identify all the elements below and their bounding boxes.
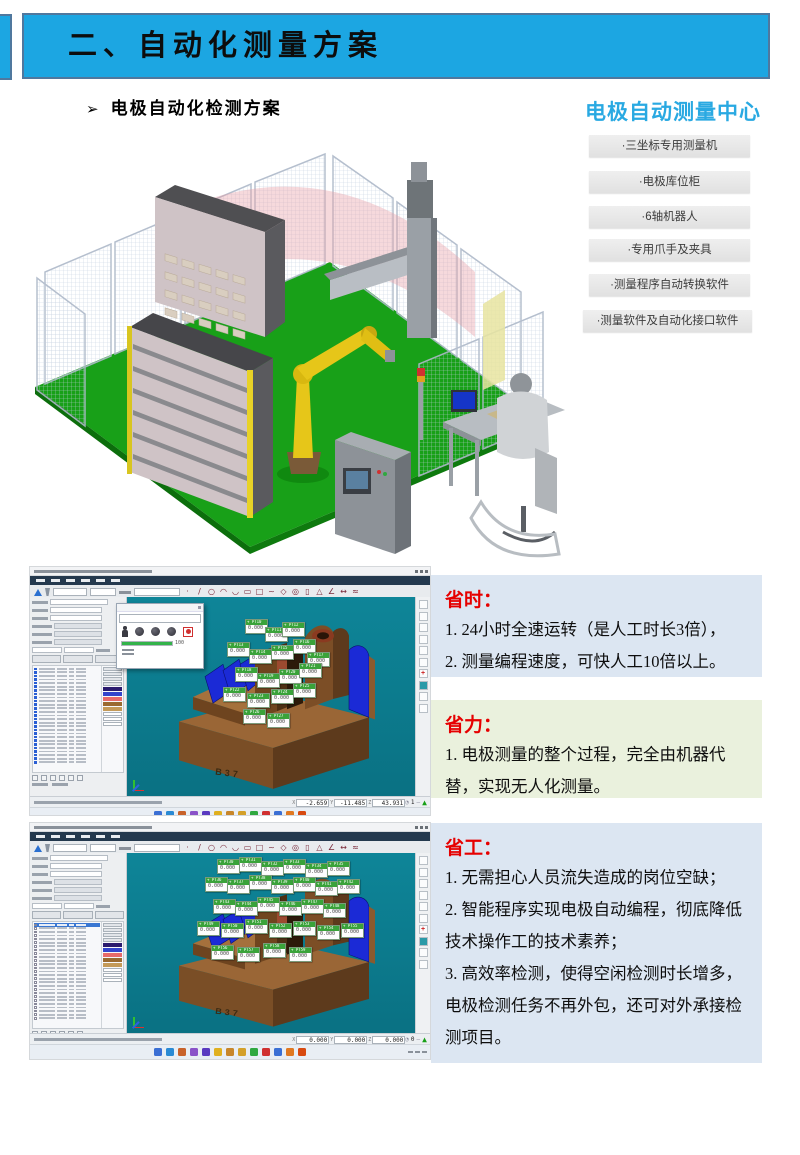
panel-tab[interactable] [52,783,68,786]
cell-value [69,981,74,983]
feature-point-icon[interactable]: · [183,587,192,597]
menu-item[interactable] [51,579,60,582]
taskbar-app-icon[interactable] [226,811,234,816]
cell-value [39,729,55,731]
measurement-tag: + PT500.000 [221,923,244,938]
taskbar-app-icon[interactable] [178,1048,186,1056]
taskbar-app-icon[interactable] [238,1048,246,1056]
cell-value [69,722,74,724]
cell-value [39,675,55,677]
search-input[interactable] [32,903,62,909]
taskbar-app-icon[interactable] [154,811,162,816]
row-checkbox[interactable] [34,934,37,937]
maximize-button[interactable] [420,826,423,829]
cell-value [39,754,55,756]
operator-mode-icon [121,626,128,637]
target-icon[interactable] [419,948,428,957]
cell-value [69,686,74,688]
taskbar-app-icon[interactable] [286,811,294,816]
measurement-tag: + PT330.000 [283,859,306,874]
cell-value [69,718,74,720]
taskbar-app-icon[interactable] [190,1048,198,1056]
cell-value [69,978,74,980]
solution-panel-title: 电极自动测量中心 [585,96,761,126]
row-marker[interactable] [34,747,37,750]
close-button[interactable] [425,570,428,573]
row-marker[interactable] [34,675,37,678]
feature-arc-icon[interactable]: ◠ [219,587,228,597]
row-marker[interactable] [34,757,37,760]
cell-value [57,743,67,745]
benefit-box-staff: 省工： 1. 无需担心人员流失造成的岗位空缺； 2. 智能程序实现电极自动编程，… [431,823,762,1063]
panel-button[interactable] [95,911,124,919]
cell-value [57,725,67,727]
taskbar-app-icon[interactable] [238,811,246,816]
cell-value [57,942,67,944]
row-marker[interactable] [34,703,37,706]
tolerance-color-swatch [103,687,122,691]
row-marker[interactable] [34,739,37,742]
cell-value [76,747,86,749]
row-marker[interactable] [34,668,37,671]
row-marker[interactable] [34,678,37,681]
row-marker[interactable] [34,682,37,685]
panel-icon[interactable] [68,775,74,781]
tolerance-color-swatch [103,702,122,706]
taskbar-app-icon[interactable] [274,811,282,816]
cell-value [76,967,86,969]
feature-arc-icon[interactable]: ◠ [219,843,228,853]
menu-item[interactable] [81,835,90,838]
align-icon[interactable] [34,589,42,596]
panel-button[interactable] [32,911,61,919]
side-input[interactable] [103,722,122,726]
field-label [32,889,52,892]
grid-icon[interactable] [419,960,428,969]
filter-input[interactable] [64,903,94,909]
row-marker[interactable] [34,725,37,728]
automation-cell-illustration [35,122,570,560]
taskbar-app-icon[interactable] [286,1048,294,1056]
menu-item[interactable] [111,835,120,838]
view-toolbar: + [415,853,430,1034]
row-checkbox[interactable] [34,977,37,980]
taskbar-app-icon[interactable] [178,811,186,816]
row-marker[interactable] [34,750,37,753]
cell-value [39,1007,55,1009]
axis-label-x: X [292,1037,295,1043]
taskbar-app-icon[interactable] [262,1048,270,1056]
taskbar-app-icon[interactable] [190,811,198,816]
cell-value [57,978,67,980]
row-marker[interactable] [34,714,37,717]
row-marker[interactable] [34,711,37,714]
row-checkbox[interactable] [34,927,37,930]
side-button[interactable] [103,672,122,676]
row-marker[interactable] [34,685,37,688]
feature-distance-icon[interactable]: ↔ [339,587,348,597]
feature-sphere-icon[interactable]: ◎ [291,587,300,597]
menu-item[interactable] [66,579,75,582]
taskbar-app-icon[interactable] [226,1048,234,1056]
step-button[interactable] [167,627,176,636]
cell-value [69,927,74,929]
taskbar-app-icon[interactable] [274,1048,282,1056]
cell-value [69,989,74,991]
cell-value [69,931,74,933]
feature-cone-icon[interactable]: △ [315,587,324,597]
row-marker[interactable] [34,754,37,757]
row-checkbox[interactable] [34,941,37,944]
cell-value [69,985,74,987]
feature-cone-icon[interactable]: △ [315,843,324,853]
probe-teal-icon[interactable] [419,681,428,690]
cell-value [76,704,86,706]
cell-value [57,945,67,947]
row-marker[interactable] [34,700,37,703]
solution-item-gripper: ·专用爪手及夹具 [589,239,750,261]
program-dropdown[interactable] [134,588,180,596]
cell-value [69,740,74,742]
feature-rect-icon[interactable]: □ [255,843,264,853]
menu-item[interactable] [96,835,105,838]
feature-line-icon[interactable]: / [195,843,204,853]
minimize-button[interactable] [415,826,418,829]
feature-line-icon[interactable]: / [195,587,204,597]
row-checkbox[interactable] [34,949,37,952]
close-button[interactable] [425,826,428,829]
row-marker[interactable] [34,761,37,764]
row-checkbox[interactable] [34,974,37,977]
row-marker[interactable] [34,671,37,674]
row-checkbox[interactable] [34,956,37,959]
taskbar-app-icon[interactable] [202,811,210,816]
cell-value [69,743,74,745]
feature-angle-icon[interactable]: ∠ [327,843,336,853]
feature-plane-icon[interactable]: ◇ [279,843,288,853]
taskbar-app-icon[interactable] [166,811,174,816]
taskbar-app-icon[interactable] [202,1048,210,1056]
cell-value [76,675,86,677]
feature-plane-icon[interactable]: ◇ [279,587,288,597]
panel-icon[interactable] [50,775,56,781]
menu-item[interactable] [36,835,45,838]
row-checkbox[interactable] [34,985,37,988]
stop-button[interactable] [183,627,193,637]
tolerance-color-swatch [103,697,122,701]
select-icon[interactable] [419,902,428,911]
tag-value: 0.000 [302,905,323,911]
cell-value [39,693,55,695]
field-input[interactable] [50,855,108,861]
probe-count-value: 1 [411,799,415,806]
coord-red-icon[interactable]: + [419,669,428,678]
taskbar-app-icon[interactable] [250,1048,258,1056]
maximize-button[interactable] [420,570,423,573]
section-banner: 二、自动化测量方案 [22,13,770,79]
measurement-tag: + PT370.000 [227,879,250,894]
row-checkbox[interactable] [34,1017,37,1020]
row-checkbox[interactable] [34,1010,37,1013]
feature-distance-icon[interactable]: ↔ [339,843,348,853]
row-marker[interactable] [34,729,37,732]
taskbar-app-icon[interactable] [298,1048,306,1056]
feature-curve-icon[interactable]: ~ [267,843,276,853]
tag-value: 0.000 [248,699,269,705]
probe-icon[interactable] [45,588,50,596]
row-checkbox[interactable] [34,938,37,941]
rotate-icon[interactable] [419,623,428,632]
feature-ellipse-icon[interactable]: ◡ [231,587,240,597]
row-checkbox[interactable] [34,1013,37,1016]
taskbar-app-icon[interactable] [214,811,222,816]
feature-panel [30,597,127,797]
cell-value [76,679,86,681]
table-row[interactable] [34,760,100,764]
row-checkbox[interactable] [34,924,37,927]
side-button[interactable] [103,923,122,927]
row-checkbox[interactable] [34,1003,37,1006]
tag-value: 0.000 [246,925,267,931]
solution-item-rack: ·电极库位柜 [589,171,750,193]
program-dropdown[interactable] [134,844,180,852]
grid-icon[interactable] [419,704,428,713]
taskbar-app-icon[interactable] [166,1048,174,1056]
filter-input[interactable] [64,647,94,653]
cell-value [57,996,67,998]
cell-value [76,938,86,940]
taskbar-app-icon[interactable] [154,1048,162,1056]
taskbar-app-icon[interactable] [298,811,306,816]
panel-button[interactable] [63,911,92,919]
feature-angle-icon[interactable]: ∠ [327,587,336,597]
cell-value [39,996,55,998]
tag-value: 0.000 [240,863,261,869]
row-marker[interactable] [34,696,37,699]
feature-ellipse-icon[interactable]: ◡ [231,843,240,853]
panel-icon[interactable] [77,775,83,781]
cell-value [39,967,55,969]
feature-cylinder-icon[interactable]: ▯ [303,843,312,853]
pause-button[interactable] [151,627,160,636]
banner-edge-fragment [0,14,12,80]
align-icon[interactable] [34,845,42,852]
axis-label-z: Z [368,800,371,806]
side-button[interactable] [103,677,122,681]
cell-value [57,686,67,688]
cell-value [39,671,55,673]
side-input[interactable] [103,717,122,721]
view-box-icon[interactable] [419,658,428,667]
row-checkbox[interactable] [34,970,37,973]
field-label [32,897,52,900]
menu-item[interactable] [36,579,45,582]
feature-scan-icon[interactable]: ≈ [351,587,360,597]
fit-icon[interactable] [419,868,428,877]
probe-dropdown[interactable] [90,588,116,596]
side-button[interactable] [103,682,122,686]
row-marker[interactable] [34,732,37,735]
feature-circle-icon[interactable]: ○ [207,587,216,597]
field-input[interactable] [50,607,102,613]
feature-point-icon[interactable]: · [183,843,192,853]
cell-value [57,740,67,742]
probe-count-icon: ◔ [405,799,409,806]
minimize-button[interactable] [415,570,418,573]
feature-rect-icon[interactable]: □ [255,587,264,597]
cell-value [57,985,67,987]
taskbar-app-icon[interactable] [250,811,258,816]
zoom-icon[interactable] [419,600,428,609]
cable [471,502,559,556]
row-checkbox[interactable] [34,963,37,966]
cell-value [76,686,86,688]
panel-button[interactable] [32,655,61,663]
cell-value [57,931,67,933]
cell-value [69,960,74,962]
panel-icon[interactable] [59,775,65,781]
units-icon: — [417,799,421,806]
cell-value [69,1010,74,1012]
probe-teal-icon[interactable] [419,937,428,946]
cell-value [76,963,86,965]
cell-value [39,668,55,670]
row-marker[interactable] [34,721,37,724]
row-checkbox[interactable] [34,988,37,991]
zoom-icon[interactable] [419,856,428,865]
run-dialog: 100 [116,603,204,669]
row-checkbox[interactable] [34,945,37,948]
dialog-dropdown[interactable] [119,614,201,623]
feature-slot-icon[interactable]: ▭ [243,843,252,853]
feature-circle-icon[interactable]: ○ [207,843,216,853]
menu-item[interactable] [96,579,105,582]
search-input[interactable] [32,647,62,653]
side-button[interactable] [103,938,122,942]
row-marker[interactable] [34,693,37,696]
row-checkbox[interactable] [34,1006,37,1009]
table-side-controls [101,666,123,772]
cell-value [76,949,86,951]
part-label: B37 [215,1006,242,1018]
tag-value: 0.000 [280,675,301,681]
row-marker[interactable] [34,689,37,692]
side-button[interactable] [103,928,122,932]
cell-value [76,985,86,987]
side-input[interactable] [103,973,122,977]
pan-icon[interactable] [419,891,428,900]
table-row[interactable] [34,1016,100,1020]
cell-value [57,707,67,709]
side-button[interactable] [103,933,122,937]
target-icon[interactable] [419,692,428,701]
feature-slot-icon[interactable]: ▭ [243,587,252,597]
pan-icon[interactable] [419,635,428,644]
tag-value: 0.000 [294,883,315,889]
taskbar-app-icon[interactable] [262,811,270,816]
row-checkbox[interactable] [34,981,37,984]
cell-value [57,1017,67,1019]
measurement-tag: + PT560.000 [211,945,234,960]
field-readonly [54,895,102,901]
side-input[interactable] [103,712,122,716]
menu-item[interactable] [66,835,75,838]
viewport-3d[interactable]: B37+ PT300.000+ PT310.000+ PT320.000+ PT… [127,853,416,1034]
feature-sphere-icon[interactable]: ◎ [291,843,300,853]
panel-button[interactable] [63,655,92,663]
cell-value [76,718,86,720]
tolerance-color-swatch [103,963,122,967]
panel-icon[interactable] [41,775,47,781]
row-checkbox[interactable] [34,967,37,970]
play-button[interactable] [135,627,144,636]
cell-value [76,924,86,926]
select-icon[interactable] [419,646,428,655]
cell-value [39,743,55,745]
rotate-icon[interactable] [419,879,428,888]
fit-icon[interactable] [419,612,428,621]
coordinate-system-dropdown[interactable] [53,844,87,852]
menu-item[interactable] [111,579,120,582]
side-input[interactable] [103,968,122,972]
panel-tab[interactable] [32,783,48,786]
menu-item[interactable] [81,579,90,582]
row-marker[interactable] [34,743,37,746]
row-marker[interactable] [34,718,37,721]
cell-value [76,740,86,742]
benefit-line: 1. 无需担心人员流失造成的岗位空缺； [445,862,752,894]
field-input[interactable] [50,599,108,605]
row-marker[interactable] [34,707,37,710]
row-checkbox[interactable] [34,995,37,998]
row-marker[interactable] [34,736,37,739]
row-checkbox[interactable] [34,952,37,955]
field-input[interactable] [50,615,102,621]
cell-value [76,743,86,745]
field-input[interactable] [50,871,102,877]
cell-value [76,999,86,1001]
menu-item[interactable] [51,835,60,838]
coord-red-icon[interactable]: + [419,925,428,934]
axis-triad-icon [133,1014,147,1028]
cell-value [69,697,74,699]
probe-icon[interactable] [45,844,50,852]
row-checkbox[interactable] [34,959,37,962]
feature-curve-icon[interactable]: ~ [267,587,276,597]
probe-dropdown[interactable] [90,844,116,852]
dialog-close-button[interactable] [198,606,201,609]
field-input[interactable] [50,863,102,869]
toolbar-label [119,847,131,850]
panel-icon[interactable] [32,775,38,781]
feature-cylinder-icon[interactable]: ▯ [303,587,312,597]
view-box-icon[interactable] [419,914,428,923]
side-input[interactable] [103,978,122,982]
cell-illustration-svg [35,122,570,560]
coordinate-system-dropdown[interactable] [53,588,87,596]
cell-value [69,733,74,735]
cell-value [57,935,67,937]
row-checkbox[interactable] [34,992,37,995]
row-checkbox[interactable] [34,931,37,934]
cell-value [76,693,86,695]
windows-taskbar [30,1044,430,1059]
feature-scan-icon[interactable]: ≈ [351,843,360,853]
cell-value [76,931,86,933]
cell-value [57,989,67,991]
row-checkbox[interactable] [34,999,37,1002]
taskbar-app-icon[interactable] [214,1048,222,1056]
